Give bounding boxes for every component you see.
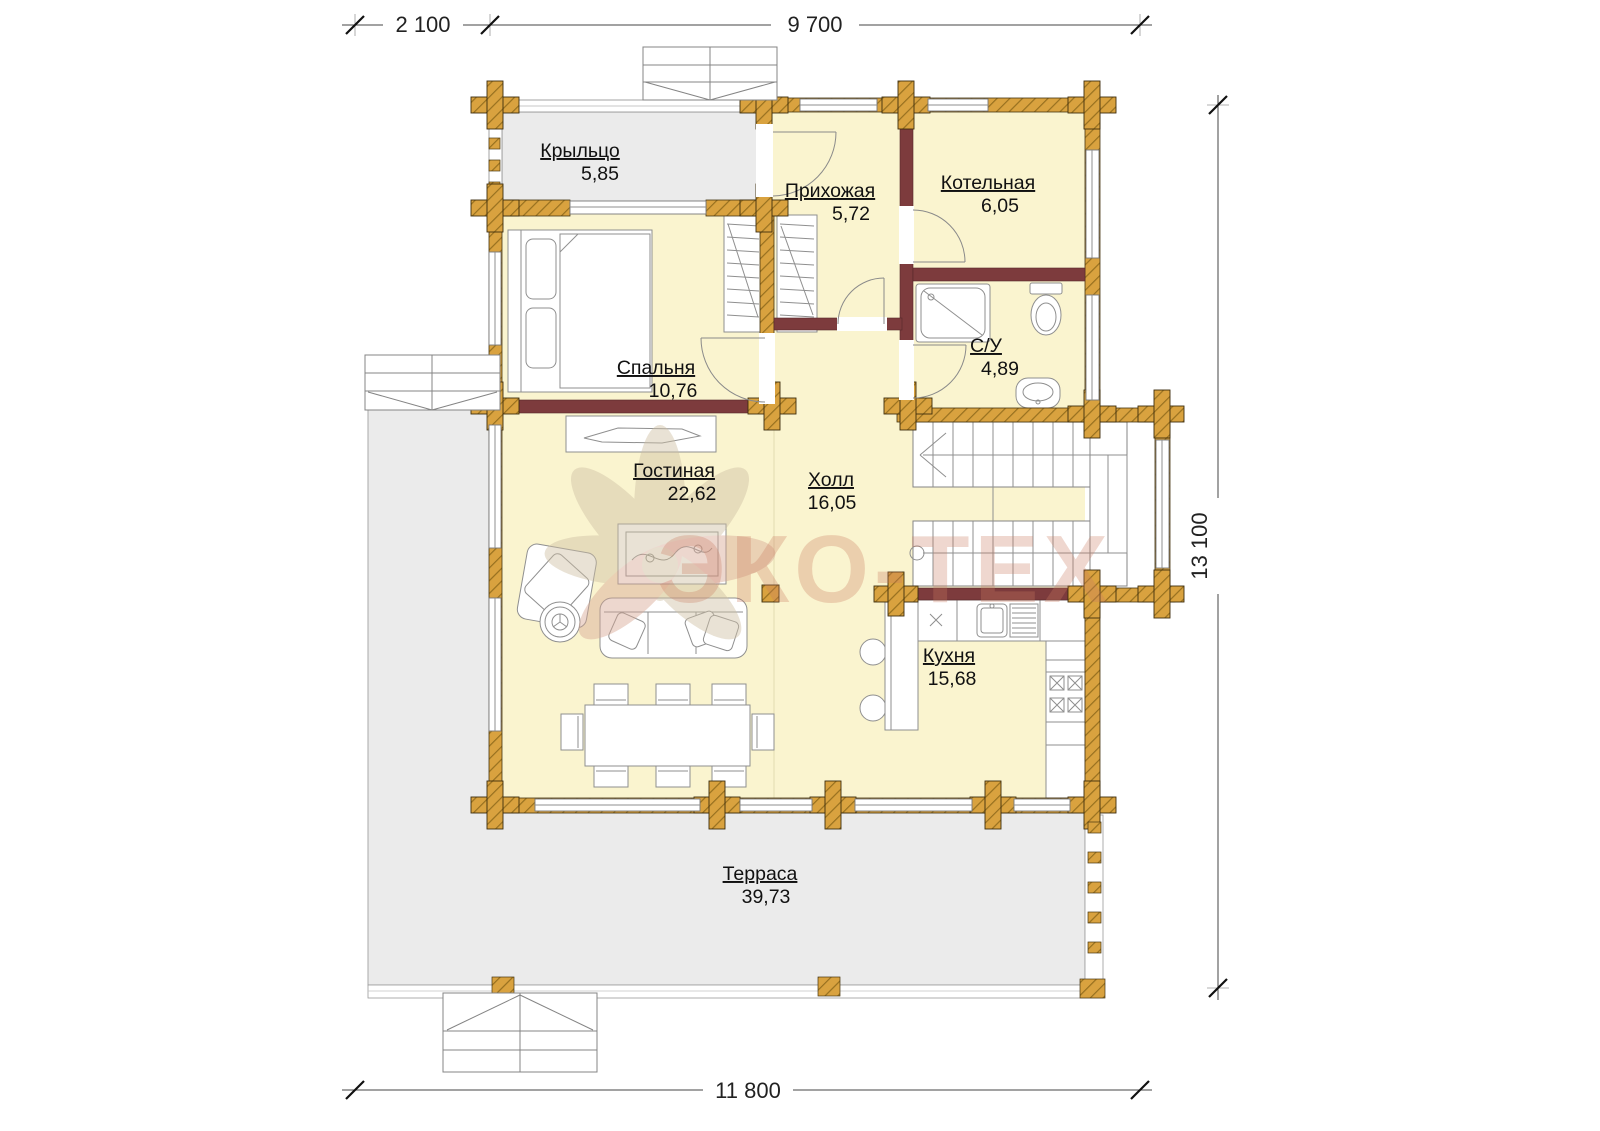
dim-top-right: 9 700: [787, 12, 842, 37]
room-area-terrace: 39,73: [742, 886, 791, 908]
room-area-hall: 16,05: [808, 492, 857, 514]
room-area-kitchen: 15,68: [928, 668, 977, 690]
dim-right: 13 100: [1187, 512, 1212, 579]
dim-bottom: 11 800: [715, 1078, 781, 1103]
dim-top-left: 2 100: [395, 12, 450, 37]
room-label-porch: Крыльцо: [540, 140, 620, 162]
floor-plan-page: ЭКО-ТЕХ 2 100 9 700 11 800 13 100 Крыльц…: [0, 0, 1600, 1131]
room-label-bedroom: Спальня: [617, 357, 695, 379]
room-label-living: Гостиная: [633, 460, 715, 482]
room-area-boiler: 6,05: [981, 195, 1019, 217]
porch-area: [489, 100, 757, 205]
room-label-terrace: Терраса: [723, 863, 798, 885]
room-label-hall: Холл: [808, 469, 854, 491]
room-area-hallway: 5,72: [832, 203, 870, 225]
floor-plan-drawing: ЭКО-ТЕХ 2 100 9 700 11 800 13 100 Крыльц…: [0, 0, 1600, 1131]
room-label-bathroom: С/У: [970, 335, 1003, 357]
room-label-hallway: Прихожая: [785, 180, 875, 202]
terrace-steps-bottom: [443, 993, 597, 1072]
entry-steps-top: [643, 47, 777, 100]
room-label-kitchen: Кухня: [923, 645, 975, 667]
room-area-bedroom: 10,76: [649, 380, 698, 402]
watermark-text: ЭКО-ТЕХ: [657, 516, 1112, 623]
room-label-boiler: Котельная: [941, 172, 1035, 194]
room-area-bathroom: 4,89: [981, 358, 1019, 380]
room-area-living: 22,62: [668, 483, 717, 505]
side-steps-left: [365, 355, 500, 410]
room-area-porch: 5,85: [581, 163, 619, 185]
